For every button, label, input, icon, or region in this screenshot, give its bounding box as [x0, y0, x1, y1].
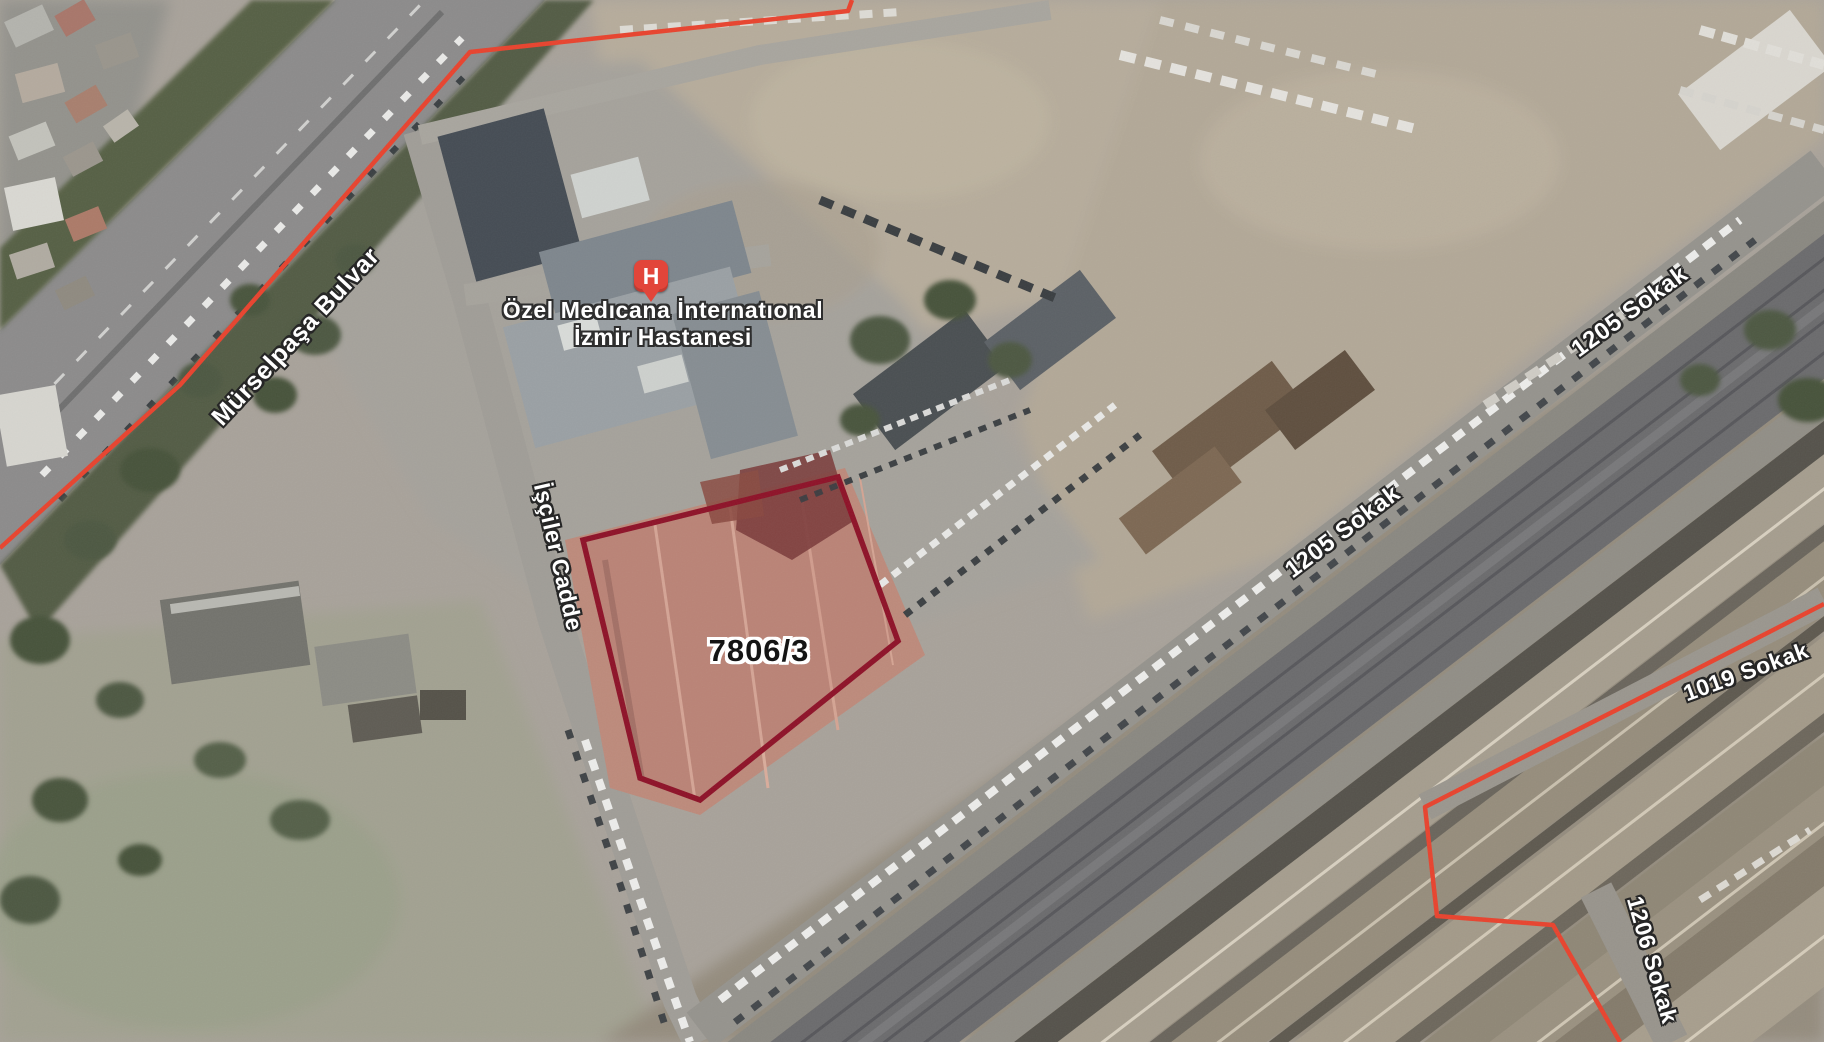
hospital-h-icon: H — [634, 260, 668, 292]
hospital-marker-pin[interactable]: H — [634, 260, 668, 292]
imagery-grain — [0, 0, 1824, 1042]
map-canvas[interactable]: Mürselpaşa Bulvar İşçiler Cadde 1205 Sok… — [0, 0, 1824, 1042]
satellite-imagery — [0, 0, 1824, 1042]
